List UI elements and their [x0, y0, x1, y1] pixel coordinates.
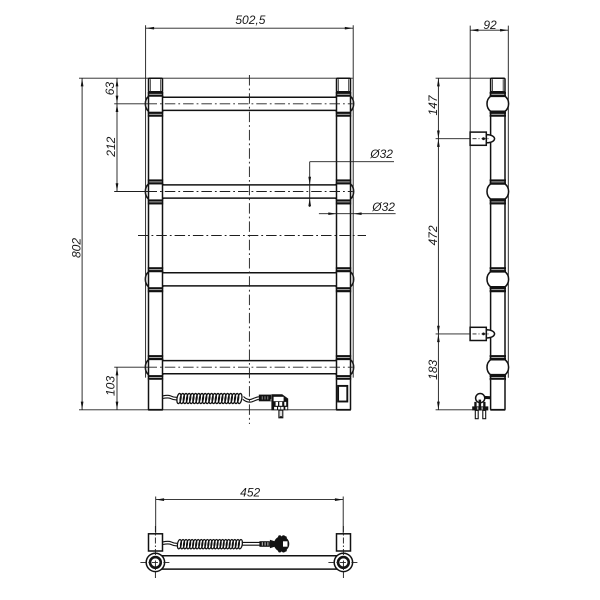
svg-text:Ø32: Ø32 [371, 200, 395, 214]
svg-text:212: 212 [104, 136, 118, 157]
svg-text:92: 92 [483, 18, 497, 32]
svg-text:183: 183 [426, 359, 440, 379]
svg-text:452: 452 [240, 486, 260, 500]
svg-text:147: 147 [426, 94, 440, 115]
svg-text:Ø32: Ø32 [369, 147, 393, 161]
svg-text:63: 63 [103, 82, 117, 96]
svg-text:472: 472 [426, 225, 440, 245]
svg-text:502,5: 502,5 [235, 13, 265, 27]
svg-text:802: 802 [70, 238, 84, 258]
svg-text:103: 103 [104, 376, 118, 396]
